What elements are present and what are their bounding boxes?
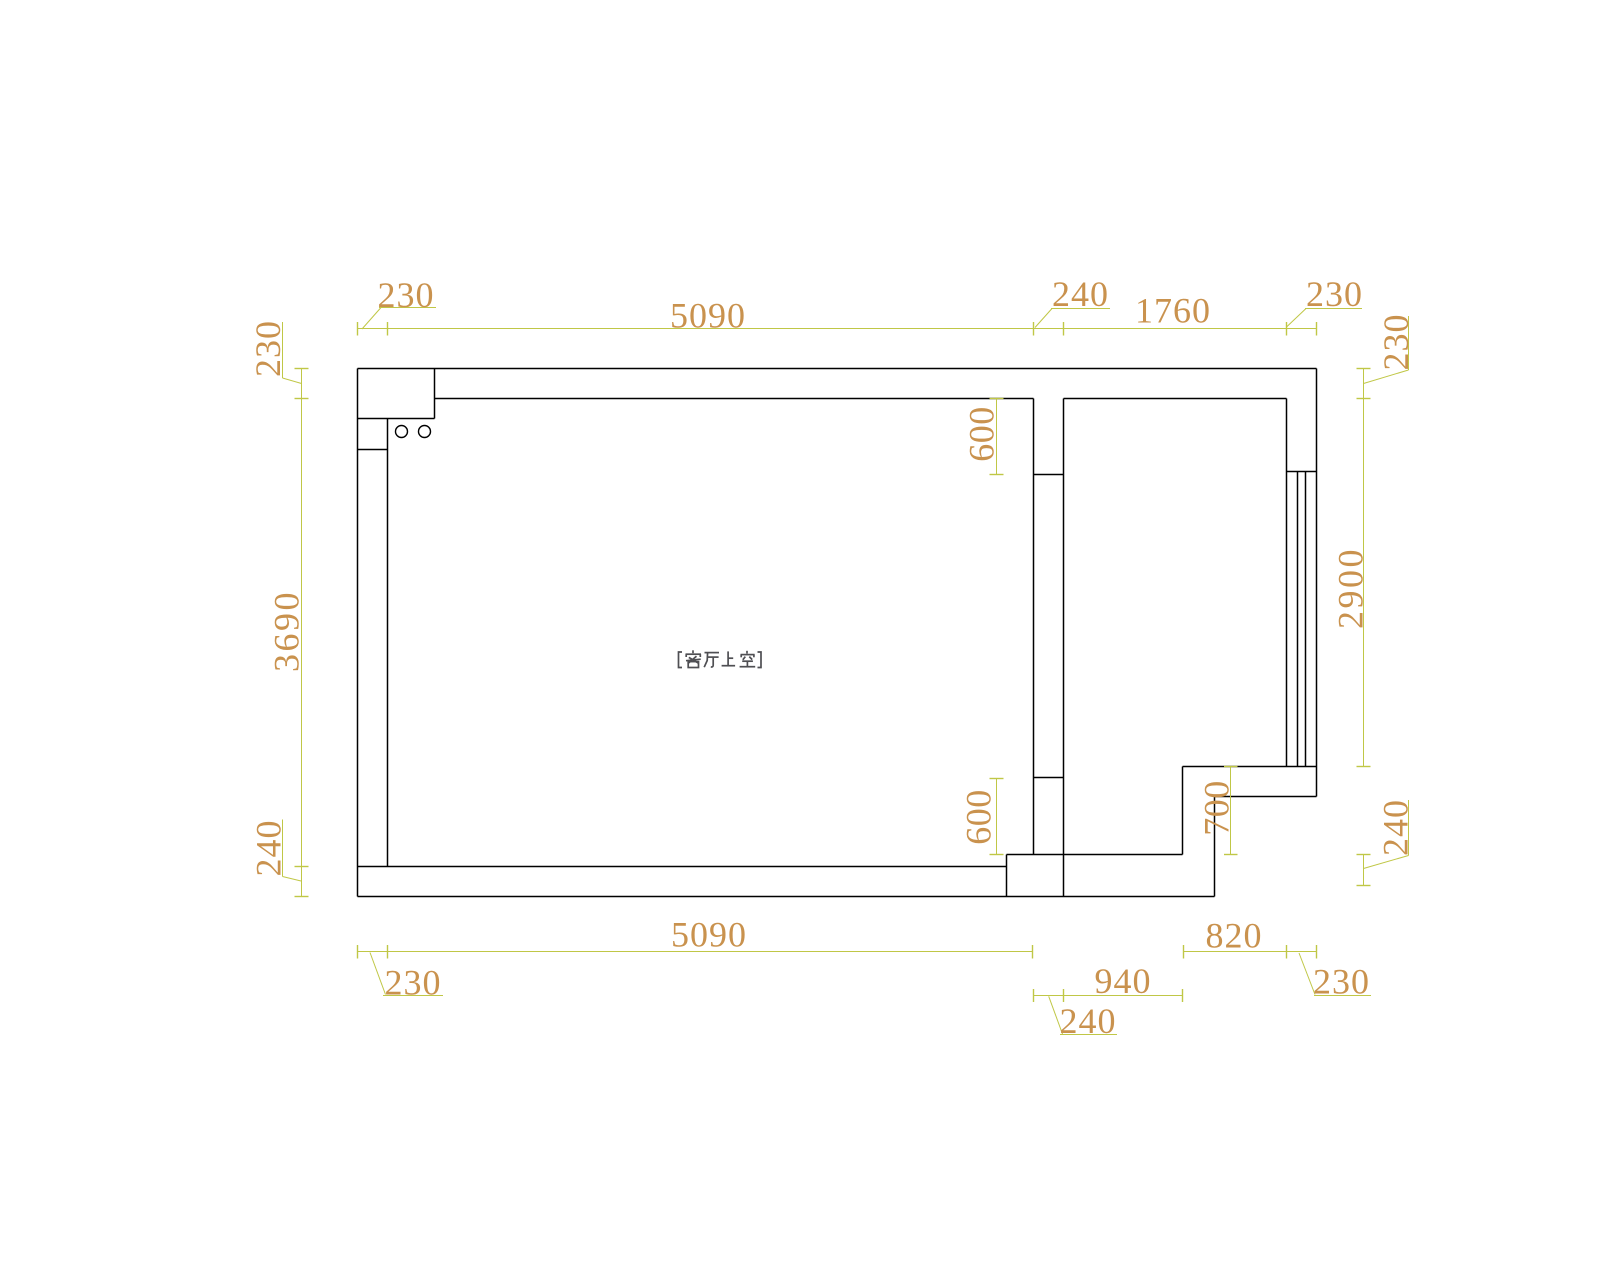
svg-text:600: 600 bbox=[959, 789, 999, 845]
svg-text:230: 230 bbox=[1376, 314, 1416, 371]
svg-text:230: 230 bbox=[385, 962, 442, 1002]
svg-text:240: 240 bbox=[1052, 274, 1109, 314]
svg-text:230: 230 bbox=[1306, 274, 1363, 314]
svg-text:240: 240 bbox=[249, 820, 289, 877]
svg-text:230: 230 bbox=[248, 320, 288, 377]
svg-text:240: 240 bbox=[1376, 799, 1416, 856]
svg-text:600: 600 bbox=[962, 406, 1002, 462]
svg-text:3690: 3690 bbox=[267, 590, 307, 672]
svg-text:230: 230 bbox=[1313, 962, 1370, 1002]
svg-text:230: 230 bbox=[378, 275, 435, 315]
svg-text:940: 940 bbox=[1095, 961, 1152, 1001]
svg-text:240: 240 bbox=[1060, 1001, 1117, 1041]
svg-text:820: 820 bbox=[1206, 916, 1263, 956]
svg-text:1760: 1760 bbox=[1135, 291, 1211, 331]
svg-text:5090: 5090 bbox=[671, 915, 747, 955]
svg-text:5090: 5090 bbox=[670, 296, 746, 336]
svg-text:700: 700 bbox=[1197, 780, 1237, 836]
svg-text:2900: 2900 bbox=[1331, 547, 1371, 629]
